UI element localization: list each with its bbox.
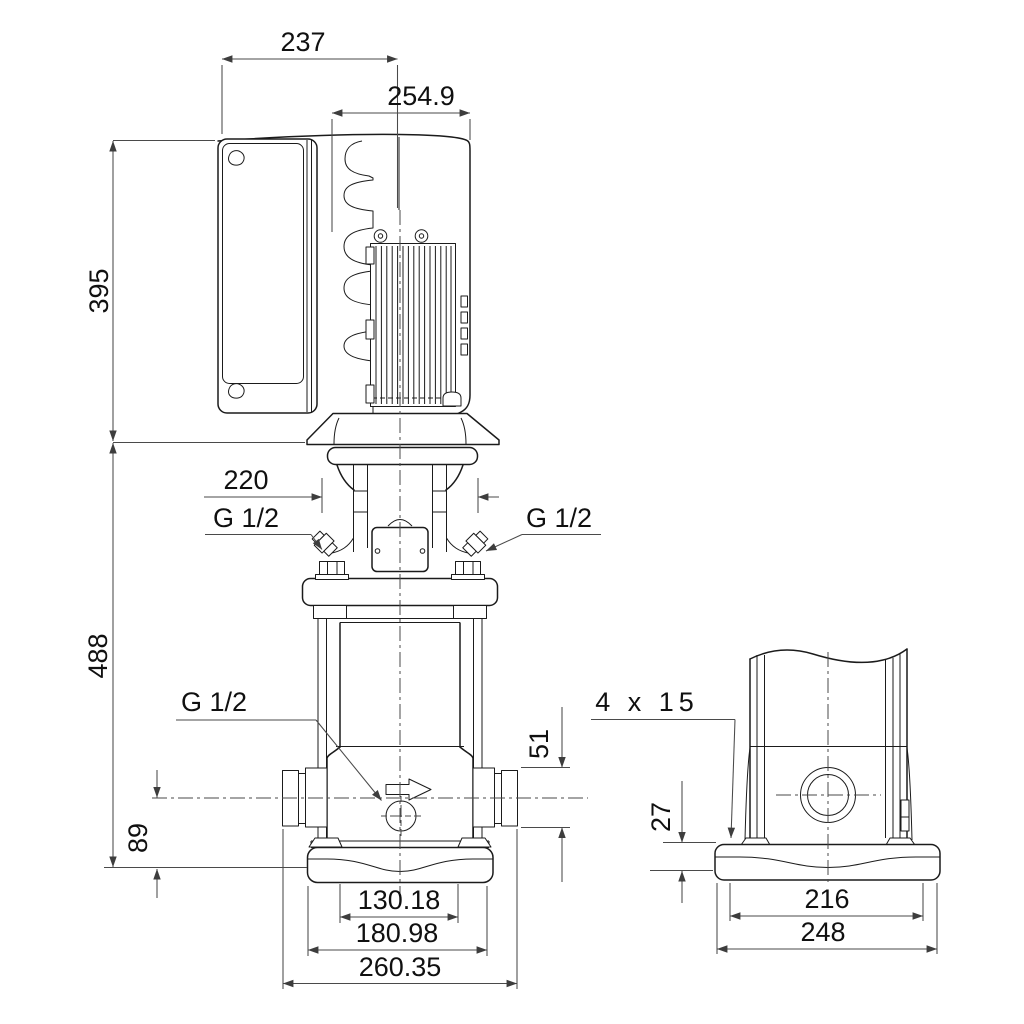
flow-direction-arrow — [386, 779, 431, 800]
dimension-side-base-height: 27 — [646, 781, 716, 903]
motor-screw-right — [415, 230, 428, 243]
label-plug-left: G 1/2 — [213, 503, 279, 533]
drain-hole-crosshair — [381, 796, 421, 836]
dim-label-coupling-width: 220 — [223, 465, 268, 495]
motor-screw-left — [374, 230, 387, 243]
dim-label-pump-height: 488 — [83, 633, 113, 678]
label-mounting-slot: 4 x 15 — [595, 687, 699, 717]
head-bolt-right — [452, 562, 485, 580]
side-clip-detail — [901, 800, 909, 831]
dim-label-base-width: 180.98 — [356, 918, 439, 948]
callout-drain: G 1/2 — [176, 687, 382, 801]
drawing-canvas: 237 254.9 395 220 G 1/2 G 1/2 — [0, 0, 1024, 1024]
head-bolt-left — [316, 562, 349, 580]
dim-label-port-flange-height: 51 — [524, 729, 554, 759]
dim-label-motor-width: 254.9 — [387, 81, 455, 111]
drain-plug-left — [310, 529, 339, 558]
pump-column — [283, 618, 518, 841]
dim-label-top-width: 237 — [280, 27, 325, 57]
flange-boss-left — [314, 606, 347, 619]
drain-plug-right — [461, 529, 490, 558]
dim-label-motor-height: 395 — [84, 268, 114, 313]
callout-plug-left: G 1/2 — [205, 503, 322, 550]
motor-foot-detail — [443, 392, 461, 406]
callout-plug-right: G 1/2 — [486, 503, 601, 551]
dim-label-side-base-width: 248 — [800, 917, 845, 947]
dim-label-side-base-height: 27 — [646, 802, 676, 832]
motor — [218, 134, 470, 414]
adapter-band — [328, 448, 478, 465]
dimension-port-flange-height: 51 — [521, 707, 570, 882]
dim-label-port-to-port: 260.35 — [359, 952, 442, 982]
dimension-port-center-height: 89 — [123, 770, 157, 898]
label-plug-right: G 1/2 — [526, 503, 592, 533]
dimension-side-base-inner-width: 216 — [730, 883, 923, 921]
tie-rod-foot-left — [309, 838, 342, 847]
dim-label-base-inner-width: 130.18 — [358, 885, 441, 915]
motor-adapter — [307, 414, 499, 465]
flange-boss-right — [454, 606, 487, 619]
control-box-panel — [223, 144, 304, 384]
dim-label-port-center-height: 89 — [123, 823, 153, 853]
side-view — [715, 649, 940, 886]
dim-label-side-base-inner-width: 216 — [804, 884, 849, 914]
label-drain: G 1/2 — [181, 687, 247, 717]
heatsink-block — [371, 244, 456, 407]
pump-dimensional-drawing: 237 254.9 395 220 G 1/2 G 1/2 — [0, 0, 1024, 1024]
tie-rod-foot-right — [458, 838, 491, 847]
